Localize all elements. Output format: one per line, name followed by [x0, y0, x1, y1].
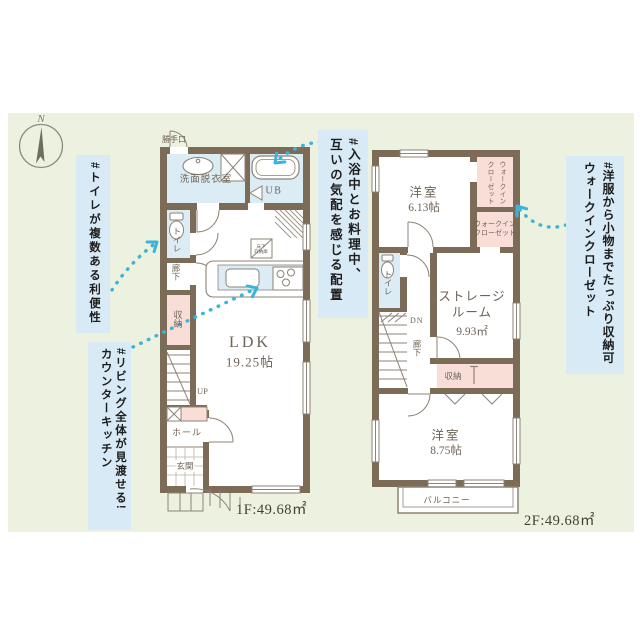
label-storage-1f: 収納	[172, 310, 185, 328]
arrow-wic	[517, 206, 566, 227]
label-hall: ホール	[172, 426, 202, 439]
label-floor2-area: 2F:49.68㎡	[524, 509, 595, 530]
annotation-toilet-convenience: #トイレが複数ある利便性	[76, 155, 110, 333]
label-wic-vertical: ウォークイン クローゼット	[483, 161, 507, 205]
label-balcony: バルコニー	[423, 494, 470, 506]
label-corridor-1f: 廊下	[170, 264, 182, 281]
kitchen-counter-icon	[206, 261, 303, 297]
label-storage-room-name: ストレージ ルーム	[438, 289, 505, 320]
label-corridor-2f: 廊下	[411, 340, 423, 357]
label-back-door: 勝手口	[162, 134, 186, 145]
annotation-walk-in-closet: #洋服から小物までたっぷり収納可 ウォークインクローゼット	[566, 156, 624, 374]
label-toilet-1f: トイレ	[171, 227, 183, 253]
label-ldk-size: 19.25帖	[226, 352, 274, 371]
label-bedroom2-name: 洋室	[431, 425, 460, 444]
label-bedroom2-size: 8.75帖	[430, 442, 462, 458]
compass-north-label: N	[37, 113, 44, 125]
stove-icon	[273, 267, 303, 290]
label-toilet-2f: トイレ	[382, 270, 394, 296]
label-stairs-up: UP	[197, 386, 208, 396]
bathtub-icon	[252, 156, 299, 179]
label-stairs-down: DN	[410, 316, 424, 325]
label-washroom: 洗面脱衣室	[180, 171, 233, 185]
hall-closet-icons	[167, 407, 207, 421]
annotation-bath-kitchen-layout: #入浴中とお料理中、 互いの気配を感じる配置	[318, 130, 368, 318]
label-underfloor-storage: 床下 収納庫	[254, 244, 268, 254]
label-floor1-area: 1F:49.68㎡	[236, 498, 307, 519]
sink-icon	[226, 269, 259, 287]
arrow-toilet	[112, 242, 157, 290]
label-bedroom1-size: 6.13帖	[408, 199, 440, 215]
label-wic-horizontal: ウォークイン クローゼット	[474, 220, 516, 238]
compass-icon	[20, 125, 63, 168]
label-bedroom1-name: 洋室	[409, 182, 438, 201]
label-storage-room-size: 9.93㎡	[456, 323, 488, 339]
floorplan-page: N #トイレが複数ある利便性 #入浴中とお料理中、 互いの気配を感じる配置 #リ…	[0, 0, 640, 640]
annotation-counter-kitchen: #リビング全体が見渡せる! カウンターキッチン	[88, 342, 131, 530]
label-unit-bath: UB	[266, 186, 283, 197]
label-closet-2f: 収納	[444, 370, 461, 382]
label-entrance: 玄関	[175, 460, 194, 472]
label-ldk-name: LDK	[229, 334, 271, 352]
